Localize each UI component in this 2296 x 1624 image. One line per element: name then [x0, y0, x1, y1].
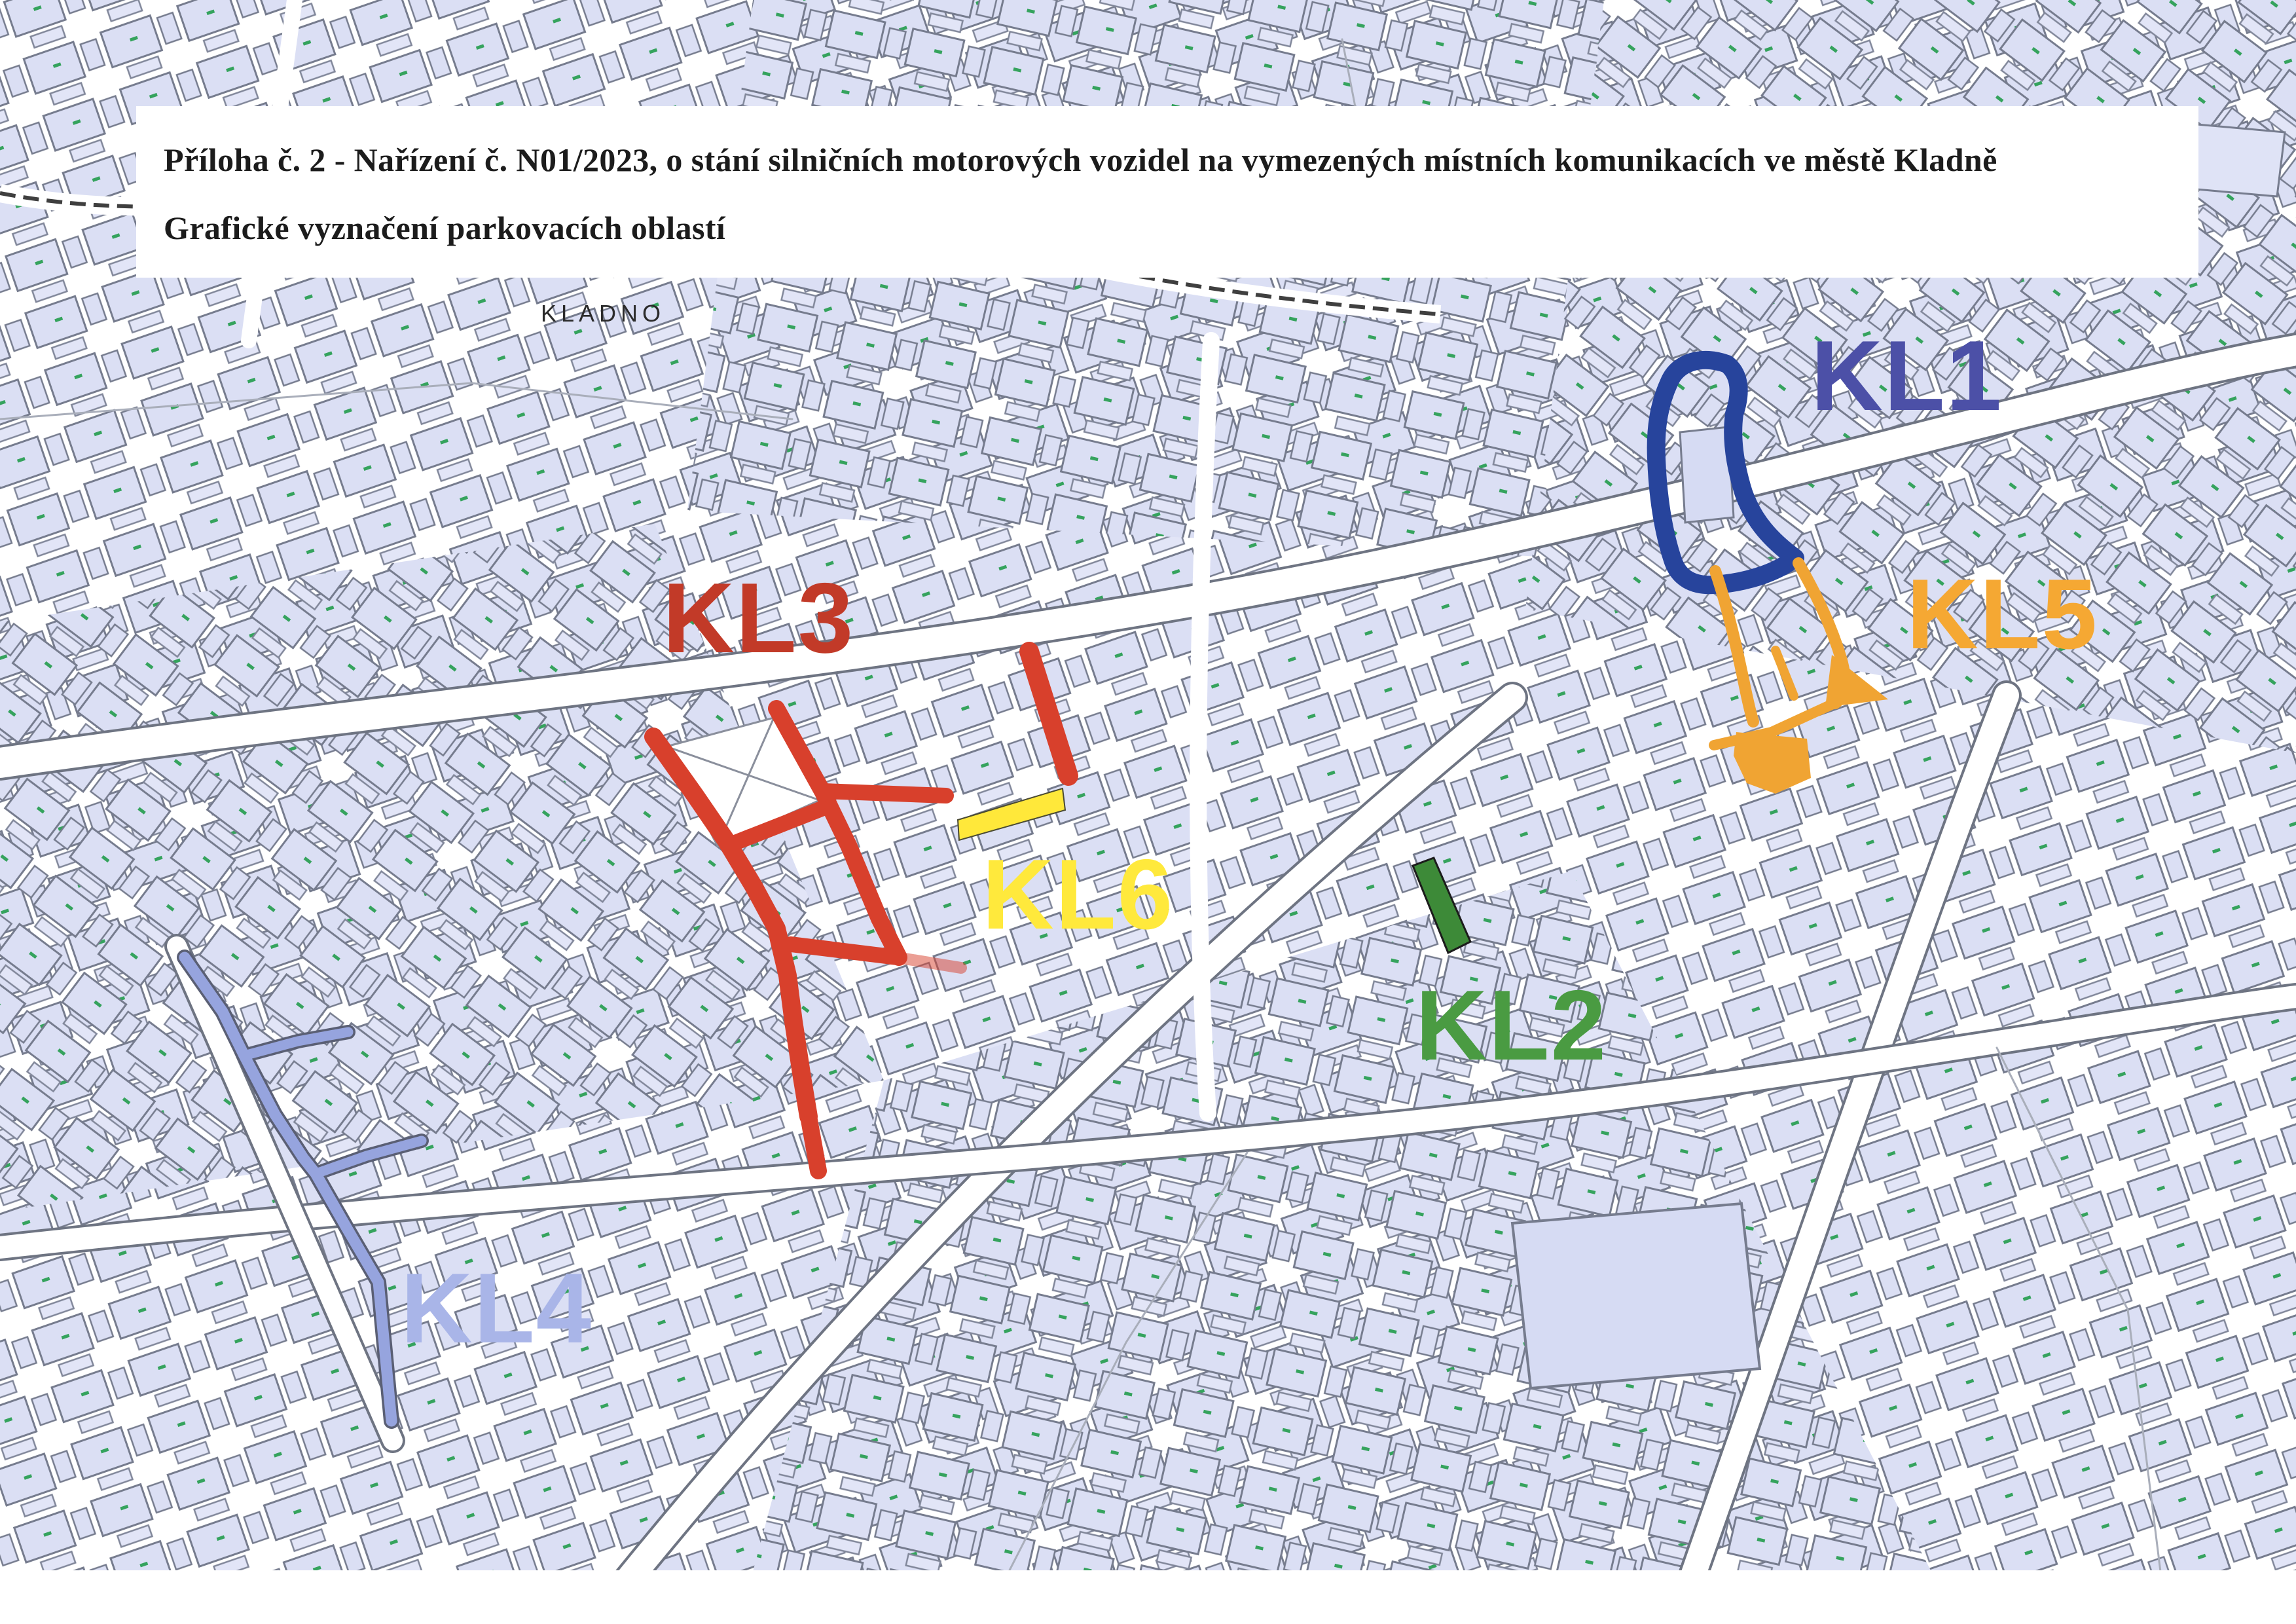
zone-label-kl4: KL4 [401, 1259, 592, 1358]
title-box: Příloha č. 2 - Nařízení č. N01/2023, o s… [136, 106, 2198, 278]
zone-label-kl3: KL3 [663, 568, 854, 668]
document-title: Příloha č. 2 - Nařízení č. N01/2023, o s… [164, 126, 2198, 194]
zone-label-kl6: KL6 [982, 845, 1174, 944]
scanned-map-page: Příloha č. 2 - Nařízení č. N01/2023, o s… [0, 0, 2296, 1624]
scan-bottom-margin [0, 1570, 2296, 1624]
city-name-label: KLADNO [541, 300, 665, 327]
zone-label-kl1: KL1 [1811, 326, 2003, 426]
document-subtitle: Grafické vyznačení parkovacích oblastí [164, 194, 2198, 262]
zone-label-kl2: KL2 [1415, 976, 1607, 1075]
zone-label-kl5: KL5 [1906, 564, 2098, 664]
